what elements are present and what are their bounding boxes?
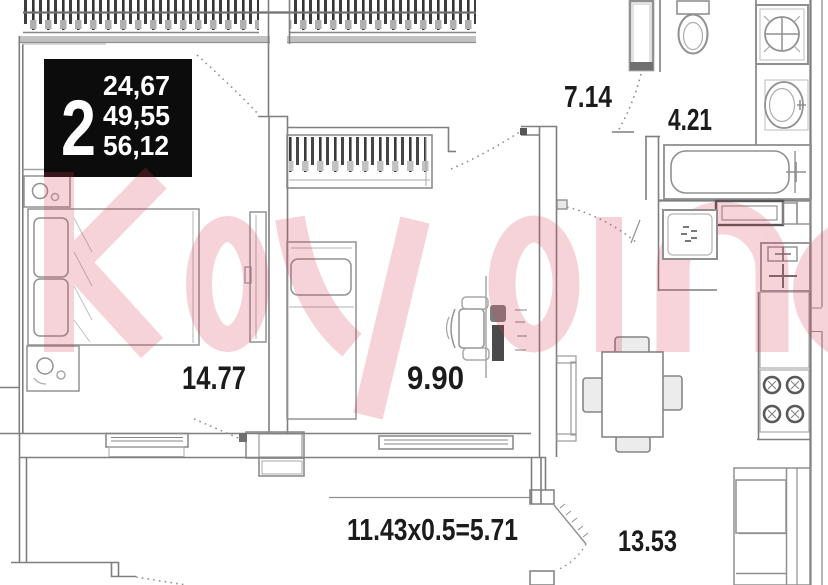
svg-text:56,12: 56,12 [103, 130, 169, 161]
svg-text:4.21: 4.21 [668, 102, 712, 137]
svg-text:14.77: 14.77 [182, 360, 246, 396]
svg-text:7.14: 7.14 [564, 79, 613, 114]
svg-text:11.43x0.5=5.71: 11.43x0.5=5.71 [347, 512, 518, 547]
svg-text:13.53: 13.53 [618, 525, 677, 558]
svg-text:49,55: 49,55 [103, 100, 170, 131]
svg-text:2: 2 [61, 83, 96, 172]
svg-text:9.90: 9.90 [407, 360, 464, 396]
svg-text:24,67: 24,67 [103, 70, 170, 101]
